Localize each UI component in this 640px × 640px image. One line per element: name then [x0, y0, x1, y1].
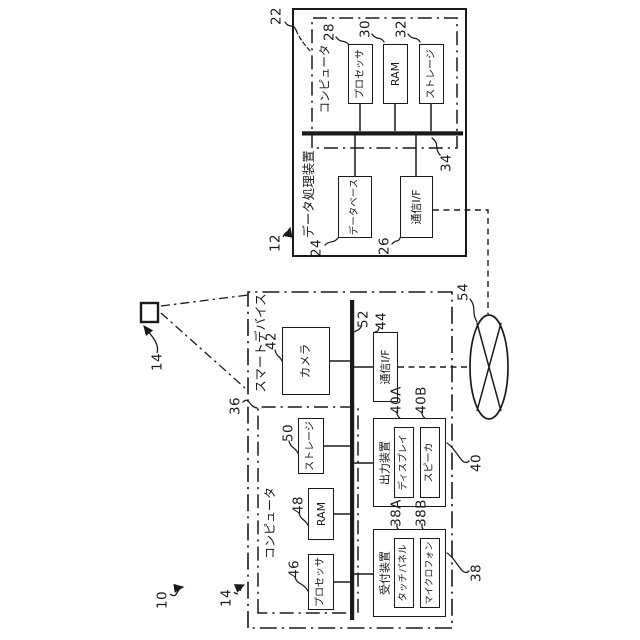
dpd-ram-box: RAM: [383, 44, 408, 104]
ref-38b: 38B: [415, 499, 429, 527]
ref-46: 46: [288, 560, 302, 578]
ref-22: 22: [270, 7, 284, 25]
smart-ram-box: RAM: [308, 488, 334, 540]
dpd-computer-title: コンピュータ: [319, 45, 331, 114]
ref-14-icon: 14: [151, 353, 165, 371]
ref-38: 38: [470, 564, 484, 582]
ref-14-box: 14: [220, 589, 234, 607]
patent-diagram: スマートデバイス コンピュータ プロセッサ RAM ストレージ カメラ 通信I/…: [0, 0, 640, 640]
ref-34: 34: [440, 154, 454, 172]
ref-44: 44: [375, 312, 389, 330]
ref-40b: 40B: [415, 386, 429, 414]
dpd-arrow: [283, 228, 290, 237]
ref-38a: 38A: [390, 499, 404, 527]
ref-40a: 40A: [390, 386, 404, 414]
network-x-lines: [477, 323, 501, 411]
dpd-processor-box: プロセッサ: [348, 44, 373, 104]
dpd-comm-if-box: 通信I/F: [400, 176, 433, 238]
patent-figure-page: スマートデバイス コンピュータ プロセッサ RAM ストレージ カメラ 通信I/…: [0, 0, 640, 640]
ref-40: 40: [470, 454, 484, 472]
ref-26: 26: [378, 237, 392, 255]
smart-bus-line: [350, 300, 354, 620]
projection-lines: [161, 295, 248, 388]
ref-10: 10: [156, 591, 170, 609]
ref-50: 50: [282, 424, 296, 442]
output-device-title: 出力装置: [380, 441, 391, 485]
display-box: ディスプレイ: [394, 427, 414, 498]
smart-storage-box: ストレージ: [298, 418, 324, 474]
database-box: データベース: [338, 176, 372, 238]
ref-30: 30: [359, 20, 373, 38]
ref-54: 54: [457, 283, 471, 301]
smart-processor-box: プロセッサ: [308, 554, 334, 610]
ref-36: 36: [229, 397, 243, 415]
ref-12: 12: [269, 234, 283, 252]
ref-28: 28: [323, 23, 337, 41]
input-device-title: 受付装置: [380, 551, 391, 595]
system-arrow: [170, 587, 183, 596]
ref-42: 42: [265, 332, 279, 350]
ref-52: 52: [357, 310, 371, 328]
ref-24: 24: [310, 239, 324, 257]
device-box-arrow: [234, 585, 244, 594]
ref-32: 32: [395, 20, 409, 38]
smart-device-icon: [141, 303, 158, 322]
ref-48: 48: [292, 496, 306, 514]
device-icon-arrow: [144, 326, 158, 353]
microphone-box: マイクロフォン: [420, 538, 440, 608]
smart-computer-title: コンピュータ: [264, 487, 276, 559]
touch-panel-box: タッチパネル: [394, 538, 414, 608]
speaker-box: スピーカ: [420, 427, 440, 498]
dpd-storage-box: ストレージ: [419, 44, 444, 104]
camera-box: カメラ: [282, 327, 330, 395]
data-processing-device-title: データ処理装置: [303, 150, 316, 238]
